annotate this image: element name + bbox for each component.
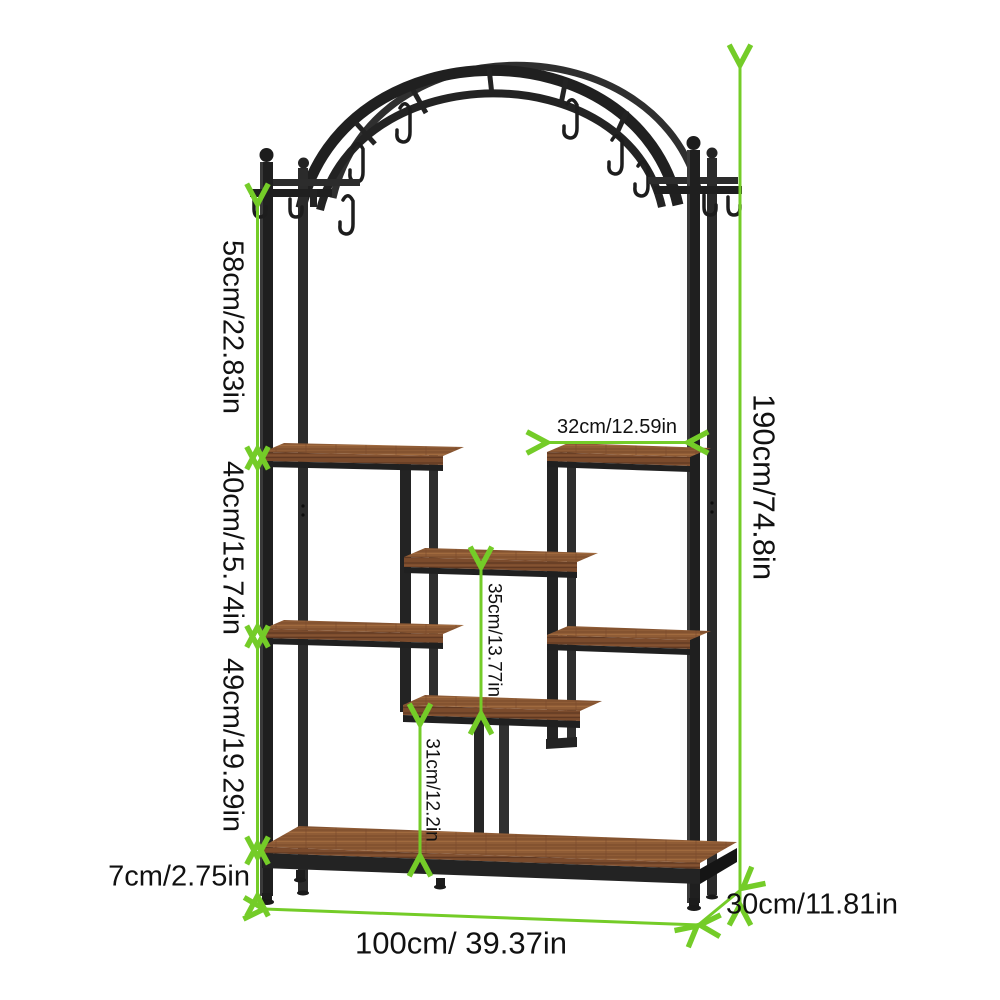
dimension-label-35cm: 35cm/13.77in	[485, 583, 504, 697]
dimension-label-58cm: 58cm/22.83in	[218, 240, 247, 414]
frame-right-bottom-rail	[546, 737, 577, 749]
screw-dot	[301, 504, 304, 507]
product-illustration	[0, 0, 1000, 1000]
right-front-foot	[687, 905, 701, 911]
right-back-foot	[706, 895, 718, 900]
screw-dot	[710, 501, 713, 504]
right-back-finial	[707, 148, 718, 159]
arch-assembly	[301, 65, 699, 234]
screw-dot	[710, 510, 713, 513]
left-back-bracket	[272, 179, 360, 186]
right-back-post	[707, 158, 717, 895]
screw-dot	[301, 513, 304, 516]
shelf-upper-right	[547, 443, 711, 472]
center-support-post-front	[474, 720, 484, 850]
dimension-label-40cm: 40cm/15.74in	[218, 461, 247, 635]
dimension-label-32cm: 32cm/12.59in	[557, 417, 677, 437]
product-dimension-diagram: 58cm/22.83in 40cm/15.74in 49cm/19.29in 7…	[0, 0, 1000, 1000]
frame-left-front-upright	[400, 461, 411, 712]
dimension-label-31cm: 31cm/12.2in	[423, 738, 442, 842]
dimension-label-30cm: 30cm/11.81in	[726, 891, 898, 920]
shelf-middle	[404, 548, 598, 578]
dimension-label-49cm: 49cm/19.29in	[218, 658, 247, 832]
dimension-label-7cm: 7cm/2.75in	[108, 863, 250, 892]
left-back-foot	[297, 891, 309, 896]
shelf-upper-left	[263, 443, 464, 471]
right-front-post-highlight	[687, 150, 690, 903]
right-front-foot-stem	[689, 898, 699, 906]
dimension-label-190cm: 190cm/74.8in	[749, 394, 780, 580]
right-front-bracket	[654, 186, 742, 194]
dimension-label-100cm: 100cm/ 39.37in	[355, 928, 567, 959]
left-front-post-highlight	[260, 162, 263, 896]
left-back-post	[298, 168, 308, 893]
shelf-lower-left	[263, 620, 464, 649]
center-support-post-back	[499, 714, 509, 844]
base-mid-foot	[434, 885, 446, 890]
shelf-lower-right	[547, 626, 711, 655]
left-back-finial	[298, 158, 309, 169]
base-assembly	[262, 826, 737, 890]
left-post-assembly	[250, 148, 360, 905]
frame-left-back-upright	[429, 455, 438, 706]
base-mid-foot	[294, 878, 306, 883]
left-front-bracket	[250, 189, 332, 197]
right-front-finial	[687, 136, 701, 150]
frame-right-back-upright	[567, 452, 576, 742]
right-post-assembly	[648, 136, 742, 911]
left-front-foot	[260, 899, 274, 905]
left-bracket-connector	[310, 189, 317, 207]
dimension-line-100cm	[264, 909, 700, 925]
left-front-finial	[260, 148, 274, 162]
